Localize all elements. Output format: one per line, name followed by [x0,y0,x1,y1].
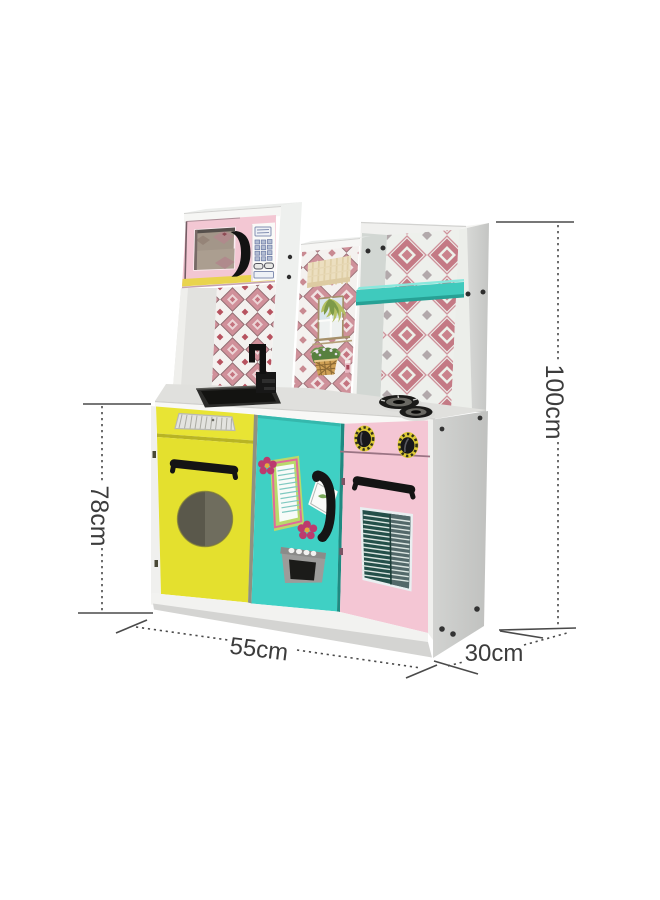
svg-text:78cm: 78cm [85,485,113,546]
svg-text:55cm: 55cm [228,633,290,667]
svg-text:30cm: 30cm [465,640,524,667]
svg-text:100cm: 100cm [540,364,568,439]
